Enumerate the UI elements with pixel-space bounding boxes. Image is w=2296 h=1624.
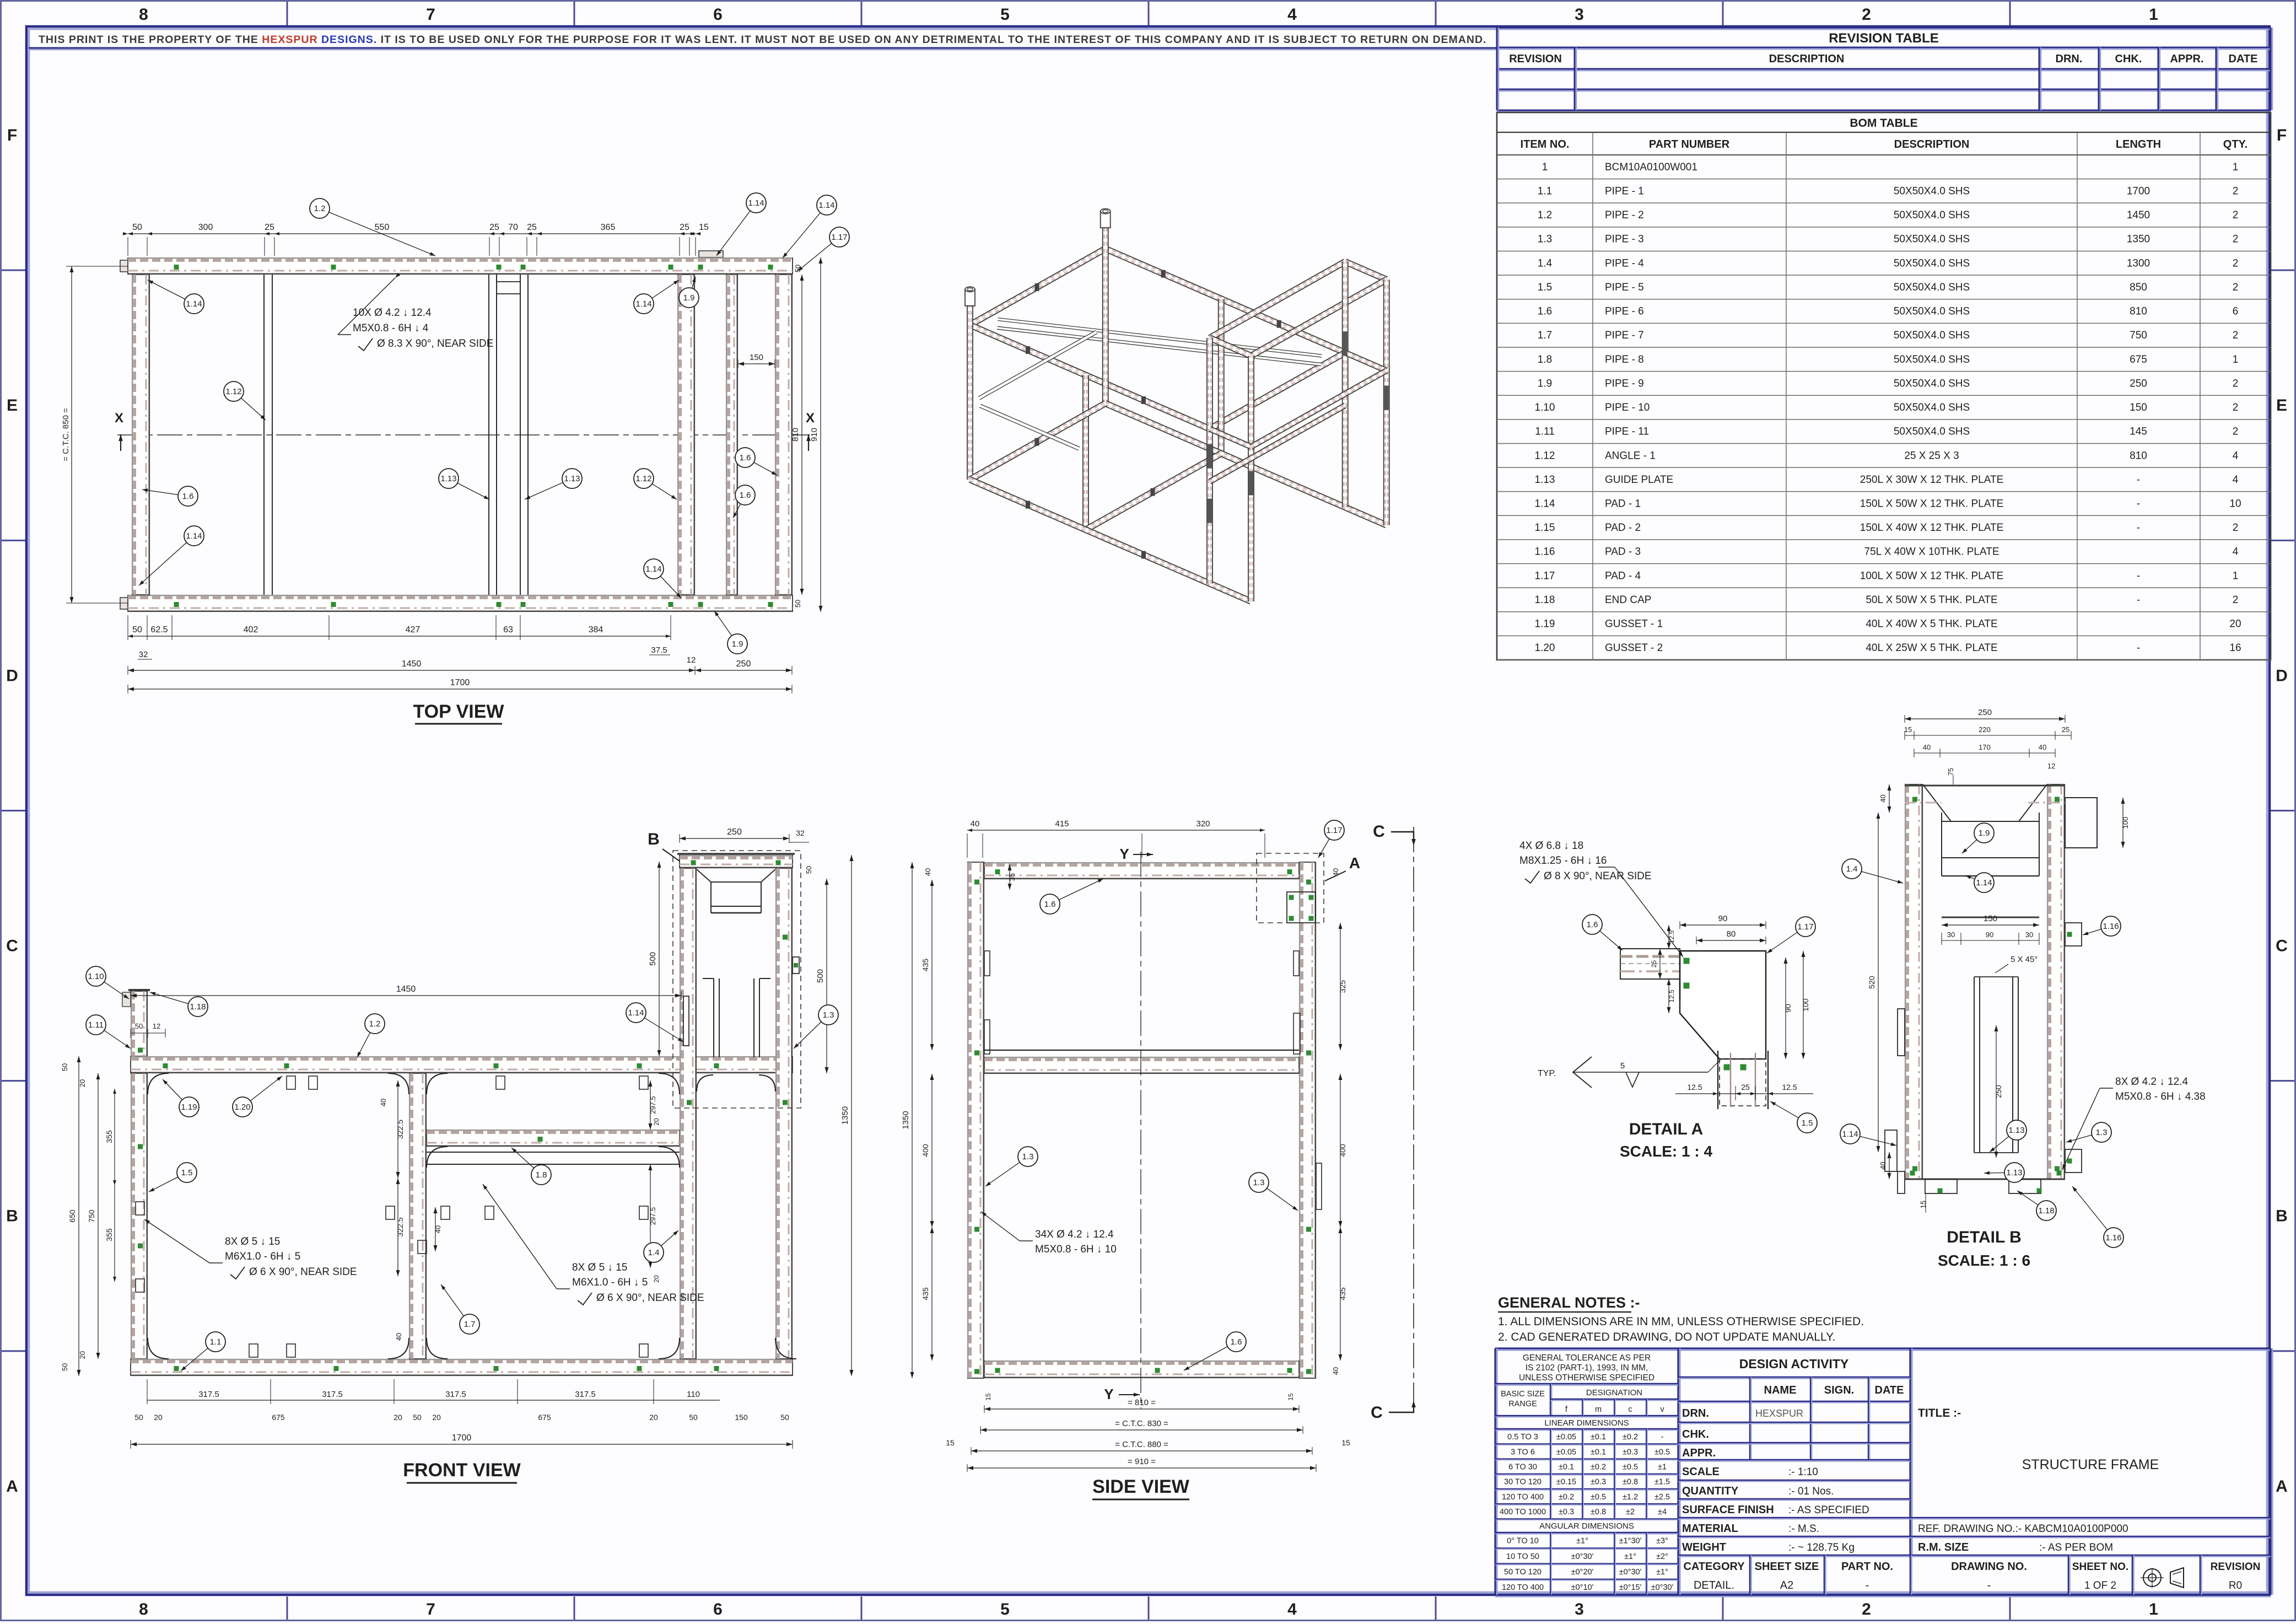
svg-text:PAD - 2: PAD - 2 [1605, 522, 1641, 534]
svg-text:40: 40 [1879, 1161, 1887, 1169]
svg-text:50: 50 [689, 1413, 698, 1422]
svg-text:SCALE: SCALE [1682, 1466, 1720, 1478]
svg-text:1.6: 1.6 [1044, 900, 1056, 909]
svg-text:PIPE - 2: PIPE - 2 [1605, 209, 1644, 221]
svg-text:M5X0.8 - 6H ↓ 4.38: M5X0.8 - 6H ↓ 4.38 [2115, 1091, 2206, 1103]
svg-text:150: 150 [1984, 914, 1997, 923]
svg-text:1.9: 1.9 [732, 639, 743, 649]
svg-text:A2: A2 [1780, 1579, 1793, 1591]
svg-text:3: 3 [1575, 6, 1584, 24]
svg-text:A: A [1349, 854, 1360, 872]
svg-text:25: 25 [489, 223, 499, 232]
svg-text:HEXSPUR: HEXSPUR [1755, 1408, 1803, 1419]
svg-text:= C.T.C. 850 =: = C.T.C. 850 = [61, 408, 71, 461]
svg-text:1.14: 1.14 [635, 299, 651, 309]
svg-text:PIPE - 10: PIPE - 10 [1605, 402, 1650, 413]
svg-text:±0.8: ±0.8 [1591, 1508, 1606, 1517]
svg-text:320: 320 [1196, 819, 1210, 829]
svg-text:50X50X4.0 SHS: 50X50X4.0 SHS [1894, 354, 1970, 365]
svg-text:20: 20 [78, 1351, 87, 1359]
svg-text:40: 40 [1332, 1367, 1340, 1375]
svg-text:-: - [2137, 570, 2140, 582]
svg-text:400: 400 [921, 1144, 930, 1157]
svg-text:1.2: 1.2 [369, 1019, 381, 1029]
svg-text:50: 50 [805, 866, 813, 874]
svg-text:250: 250 [736, 659, 751, 669]
svg-text:= C.T.C. 880 =: = C.T.C. 880 = [1115, 1440, 1168, 1449]
svg-text:20: 20 [432, 1413, 441, 1422]
svg-text:150L X 40W X 12 THK. PLATE: 150L X 40W X 12 THK. PLATE [1860, 522, 2004, 534]
svg-text:50: 50 [135, 1022, 143, 1030]
svg-text:M5X0.8 - 6H ↓ 10: M5X0.8 - 6H ↓ 10 [1035, 1244, 1117, 1255]
svg-text:1.6: 1.6 [1538, 306, 1552, 318]
svg-text:2: 2 [2233, 522, 2239, 534]
svg-text:1. ALL DIMENSIONS ARE IN MM: 1. ALL DIMENSIONS ARE IN MM, UNLESS OTHE… [1498, 1315, 1864, 1328]
svg-text:1.3: 1.3 [1253, 1178, 1265, 1187]
svg-text:25: 25 [527, 223, 537, 232]
svg-text:1.10: 1.10 [88, 972, 104, 981]
svg-text:50: 50 [794, 600, 802, 607]
svg-text:250: 250 [1994, 1085, 2003, 1098]
svg-text:F: F [7, 126, 17, 144]
svg-text:75: 75 [1947, 768, 1955, 776]
svg-text:90: 90 [1783, 1004, 1792, 1013]
svg-text:1.12: 1.12 [635, 474, 651, 483]
svg-text:BASIC SIZE: BASIC SIZE [1501, 1390, 1545, 1399]
svg-text::- 1:10: :- 1:10 [1788, 1466, 1818, 1478]
svg-text:317.5: 317.5 [575, 1390, 596, 1399]
svg-text:1350: 1350 [2127, 234, 2150, 245]
svg-text:D: D [2276, 666, 2288, 685]
svg-text:5: 5 [1620, 1061, 1625, 1071]
svg-text:2: 2 [2233, 257, 2239, 269]
svg-text:50X50X4.0 SHS: 50X50X4.0 SHS [1894, 282, 1970, 293]
svg-text:810: 810 [2130, 450, 2147, 461]
svg-text:QUANTITY: QUANTITY [1682, 1485, 1739, 1497]
svg-text:40: 40 [1332, 868, 1340, 876]
svg-text:322.5: 322.5 [396, 1217, 405, 1236]
svg-text:40: 40 [434, 1225, 442, 1233]
svg-text:675: 675 [272, 1413, 285, 1422]
svg-text:50X50X4.0 SHS: 50X50X4.0 SHS [1894, 426, 1970, 438]
svg-text:10: 10 [2229, 498, 2241, 509]
svg-text:1.18: 1.18 [190, 1002, 206, 1012]
svg-text:-: - [2137, 498, 2140, 509]
svg-text:15: 15 [699, 223, 709, 232]
svg-text:5 X 45°: 5 X 45° [2011, 955, 2038, 964]
svg-text:E: E [2276, 396, 2287, 415]
svg-text:REVISION TABLE: REVISION TABLE [1829, 31, 1939, 46]
svg-text:15: 15 [1287, 1393, 1295, 1401]
svg-text:-: - [2137, 522, 2140, 534]
svg-text:32: 32 [139, 650, 148, 659]
svg-text:0° TO 10: 0° TO 10 [1507, 1537, 1539, 1546]
svg-text:910: 910 [810, 428, 819, 442]
svg-text:SCALE: 1 : 6: SCALE: 1 : 6 [1938, 1252, 2030, 1269]
svg-text:1: 1 [2149, 6, 2158, 24]
svg-text:170: 170 [1979, 743, 1991, 751]
svg-text:A: A [2276, 1477, 2288, 1496]
svg-text:PIPE - 3: PIPE - 3 [1605, 234, 1644, 245]
svg-text:DETAIL B: DETAIL B [1947, 1228, 2022, 1246]
svg-text:D: D [6, 666, 18, 685]
svg-text:8X Ø 5 ↓ 15: 8X Ø 5 ↓ 15 [572, 1262, 627, 1273]
svg-text::- ~ 128.75 Kg: :- ~ 128.75 Kg [1788, 1542, 1855, 1553]
svg-text:1.11: 1.11 [1535, 426, 1555, 438]
svg-text:1450: 1450 [402, 659, 422, 669]
svg-text:400 TO 1000: 400 TO 1000 [1500, 1508, 1546, 1517]
svg-text:520: 520 [1867, 976, 1876, 989]
svg-text:1: 1 [2149, 1600, 2158, 1618]
svg-text:MATERIAL: MATERIAL [1682, 1523, 1738, 1535]
svg-text:DRAWING NO.: DRAWING NO. [1951, 1561, 2027, 1573]
svg-text:10X Ø 4.2 ↓ 12.4: 10X Ø 4.2 ↓ 12.4 [353, 307, 432, 319]
svg-text:40: 40 [379, 1099, 387, 1106]
svg-text:110: 110 [687, 1390, 700, 1399]
svg-text:1.20: 1.20 [1535, 642, 1555, 654]
svg-text:415: 415 [1055, 819, 1069, 829]
svg-text:WEIGHT: WEIGHT [1682, 1541, 1726, 1553]
svg-text:1700: 1700 [452, 1433, 472, 1443]
svg-text:PAD - 4: PAD - 4 [1605, 570, 1641, 582]
svg-text:±0.1: ±0.1 [1559, 1463, 1574, 1472]
svg-text:C: C [1371, 1403, 1383, 1422]
svg-text:7: 7 [426, 6, 435, 24]
svg-text::- 01 Nos.: :- 01 Nos. [1788, 1486, 1834, 1497]
svg-text:50X50X4.0 SHS: 50X50X4.0 SHS [1894, 257, 1970, 269]
svg-text:2. CAD GENERATED DRAWING, D: 2. CAD GENERATED DRAWING, DO NOT UPDATE … [1498, 1331, 1835, 1343]
svg-text:50X50X4.0 SHS: 50X50X4.0 SHS [1894, 330, 1970, 341]
svg-text:TYP.: TYP. [1538, 1069, 1556, 1078]
svg-text:1.14: 1.14 [1842, 1130, 1858, 1139]
svg-text:2: 2 [2233, 209, 2239, 221]
svg-text:±1°: ±1° [1624, 1552, 1636, 1561]
svg-text:20: 20 [653, 1118, 660, 1126]
svg-text:DETAIL.: DETAIL. [1694, 1579, 1734, 1591]
svg-text:±4: ±4 [1658, 1508, 1667, 1517]
svg-text:FRONT VIEW: FRONT VIEW [403, 1460, 521, 1481]
svg-text:12: 12 [153, 1022, 160, 1030]
svg-text:1: 1 [2233, 570, 2239, 582]
svg-text:1.3: 1.3 [823, 1010, 834, 1020]
svg-text:SURFACE FINISH: SURFACE FINISH [1682, 1504, 1774, 1516]
svg-text:5: 5 [1000, 6, 1010, 24]
svg-text:1.13: 1.13 [2008, 1126, 2024, 1135]
svg-text:2: 2 [2233, 402, 2239, 413]
svg-text:32: 32 [796, 829, 805, 837]
svg-text:ANGLE - 1: ANGLE - 1 [1605, 450, 1656, 461]
svg-text:37.5: 37.5 [651, 646, 667, 655]
svg-text:-: - [2137, 642, 2140, 654]
svg-text:0.5 TO 3: 0.5 TO 3 [1507, 1433, 1538, 1442]
svg-text:-: - [1661, 1433, 1664, 1442]
svg-text:12: 12 [2047, 762, 2055, 770]
svg-text:PIPE - 1: PIPE - 1 [1605, 185, 1644, 197]
svg-text:IS 2102 (PART-1), 1993, IN MM,: IS 2102 (PART-1), 1993, IN MM, [1526, 1363, 1648, 1373]
svg-text:15: 15 [1341, 1438, 1350, 1447]
svg-text:2: 2 [2233, 282, 2239, 293]
svg-text:8: 8 [139, 1600, 148, 1618]
svg-text:297.5: 297.5 [649, 1096, 657, 1114]
svg-text:R0: R0 [2229, 1580, 2242, 1591]
svg-text:90: 90 [1718, 914, 1728, 923]
svg-text:±0.8: ±0.8 [1623, 1478, 1638, 1487]
svg-text:1 OF 2: 1 OF 2 [2084, 1580, 2116, 1591]
svg-text:±1°: ±1° [1656, 1568, 1668, 1577]
svg-text:PIPE - 6: PIPE - 6 [1605, 306, 1644, 318]
svg-text:1450: 1450 [2127, 209, 2150, 221]
svg-text:±0.3: ±0.3 [1591, 1478, 1606, 1487]
svg-text:±0.05: ±0.05 [1556, 1448, 1576, 1456]
svg-text:C: C [6, 937, 18, 955]
svg-text:427: 427 [406, 625, 421, 634]
svg-text:15: 15 [984, 1393, 992, 1401]
svg-text:±0.5: ±0.5 [1623, 1463, 1638, 1472]
svg-text:6: 6 [713, 6, 723, 24]
svg-text:±1.2: ±1.2 [1623, 1493, 1638, 1502]
svg-text:25: 25 [265, 223, 274, 232]
svg-text:80: 80 [1727, 929, 1736, 939]
svg-text:GENERAL NOTES :-: GENERAL NOTES :- [1498, 1294, 1640, 1311]
svg-text:C: C [2276, 937, 2288, 955]
svg-text:6: 6 [713, 1600, 723, 1618]
svg-text:4: 4 [1287, 6, 1297, 24]
svg-text:500: 500 [816, 969, 825, 983]
svg-text:±0.3: ±0.3 [1623, 1448, 1638, 1456]
svg-text:BCM10A0100W001: BCM10A0100W001 [1605, 162, 1697, 173]
svg-text:1.14: 1.14 [1976, 878, 1992, 888]
svg-text:220: 220 [1979, 725, 1991, 734]
svg-text:PIPE - 4: PIPE - 4 [1605, 257, 1644, 269]
svg-text:145: 145 [2130, 426, 2147, 438]
svg-text:1350: 1350 [840, 1106, 850, 1125]
svg-text:8X Ø 4.2 ↓ 12.4: 8X Ø 4.2 ↓ 12.4 [2115, 1076, 2188, 1088]
svg-text:UNLESS OTHERWISE SPECIFIED: UNLESS OTHERWISE SPECIFIED [1519, 1373, 1654, 1383]
svg-text:40: 40 [924, 868, 932, 876]
svg-text:1.6: 1.6 [182, 492, 194, 501]
svg-text:1.19: 1.19 [1535, 619, 1555, 630]
svg-text:355: 355 [105, 1130, 114, 1143]
svg-text:1.2: 1.2 [1538, 209, 1552, 221]
svg-text:SHEET NO.: SHEET NO. [2072, 1561, 2128, 1573]
svg-text:4: 4 [2233, 546, 2239, 558]
svg-text:DESIGN ACTIVITY: DESIGN ACTIVITY [1739, 1357, 1849, 1371]
svg-text:DATE: DATE [1875, 1384, 1904, 1396]
svg-text:30 TO 120: 30 TO 120 [1504, 1478, 1542, 1487]
svg-text:1.13: 1.13 [2006, 1168, 2022, 1177]
svg-text:1.14: 1.14 [186, 299, 202, 309]
svg-text:Ø 8.3 X 90°, NEAR SIDE: Ø 8.3 X 90°, NEAR SIDE [377, 338, 493, 349]
svg-text:25: 25 [1650, 960, 1658, 968]
svg-text:±0.2: ±0.2 [1591, 1463, 1606, 1472]
svg-text:384: 384 [589, 625, 603, 634]
svg-text:±1.5: ±1.5 [1654, 1478, 1670, 1487]
svg-text:150: 150 [750, 353, 763, 362]
svg-text:40L X 40W X 5 THK. PLATE: 40L X 40W X 5 THK. PLATE [1866, 619, 1997, 630]
svg-text:THIS PRINT IS THE PROPERTY OF: THIS PRINT IS THE PROPERTY OF THE HEXSPU… [39, 34, 1486, 46]
svg-text:365: 365 [601, 223, 616, 232]
svg-text:1.7: 1.7 [1538, 330, 1552, 341]
svg-text:1.18: 1.18 [2038, 1206, 2054, 1216]
svg-text:X: X [806, 411, 815, 426]
svg-text:1.2: 1.2 [314, 204, 326, 213]
svg-text:25 X 25 X 3: 25 X 25 X 3 [1904, 450, 1959, 461]
svg-text:30: 30 [1947, 931, 1955, 939]
svg-text:R.M. SIZE: R.M. SIZE [1918, 1541, 1969, 1553]
svg-text:A: A [6, 1477, 18, 1496]
svg-text:±0.5: ±0.5 [1591, 1493, 1606, 1502]
svg-text:317.5: 317.5 [198, 1390, 219, 1399]
svg-text:1.16: 1.16 [2105, 1233, 2121, 1243]
svg-text:250: 250 [2130, 378, 2147, 389]
svg-text:PART NUMBER: PART NUMBER [1649, 138, 1730, 150]
svg-text:DATE: DATE [2229, 53, 2258, 65]
svg-text:±1°: ±1° [1576, 1537, 1588, 1546]
svg-text:40: 40 [1879, 794, 1887, 802]
svg-text:100: 100 [2121, 817, 2130, 829]
svg-text:M6X1.0 - 6H ↓ 5: M6X1.0 - 6H ↓ 5 [225, 1251, 300, 1262]
svg-text:6: 6 [2233, 306, 2239, 318]
svg-text:±1°30': ±1°30' [1619, 1537, 1642, 1546]
svg-text:1.7: 1.7 [464, 1320, 476, 1329]
svg-text:40: 40 [395, 1333, 403, 1341]
svg-text:1.4: 1.4 [1538, 257, 1553, 269]
svg-text:SHEET SIZE: SHEET SIZE [1755, 1561, 1819, 1573]
svg-text:±0°30': ±0°30' [1619, 1568, 1642, 1577]
svg-text:DRN.: DRN. [2056, 53, 2083, 65]
svg-text:B: B [6, 1207, 18, 1225]
svg-text:150L X 50W X 12 THK. PLATE: 150L X 50W X 12 THK. PLATE [1860, 498, 2004, 509]
svg-text:1.4: 1.4 [648, 1248, 660, 1257]
svg-text:30: 30 [2025, 931, 2033, 939]
svg-text:7: 7 [426, 1600, 435, 1618]
svg-text:±0°30': ±0°30' [1651, 1583, 1674, 1592]
svg-text:= 810 =: = 810 = [1128, 1398, 1156, 1407]
svg-text:TITLE :-: TITLE :- [1918, 1407, 1961, 1419]
svg-text:X: X [115, 411, 123, 426]
svg-text:GUSSET - 1: GUSSET - 1 [1605, 619, 1663, 630]
svg-text:25: 25 [680, 223, 689, 232]
svg-text::- M.S.: :- M.S. [1788, 1523, 1819, 1535]
svg-text:DESCRIPTION: DESCRIPTION [1894, 138, 1970, 150]
svg-text:SIGN.: SIGN. [1824, 1384, 1854, 1396]
svg-text:20: 20 [154, 1413, 163, 1422]
svg-text:1700: 1700 [2127, 185, 2150, 197]
svg-text:50: 50 [61, 1063, 69, 1071]
svg-text:-: - [1866, 1579, 1869, 1591]
svg-text:435: 435 [921, 959, 930, 972]
svg-text:F: F [2277, 126, 2287, 144]
svg-text:300: 300 [198, 223, 213, 232]
svg-text:4: 4 [1287, 1600, 1297, 1618]
svg-text:2: 2 [2233, 426, 2239, 438]
svg-text:1700: 1700 [450, 678, 470, 687]
svg-text:810: 810 [791, 428, 800, 442]
svg-text:REF. DRAWING NO.:- KABCM10A010: REF. DRAWING NO.:- KABCM10A0100P000 [1918, 1523, 2128, 1535]
svg-text:1.5: 1.5 [1538, 282, 1552, 293]
svg-text:1.8: 1.8 [1538, 354, 1552, 365]
svg-text:2: 2 [2233, 185, 2239, 197]
svg-text:250: 250 [727, 827, 742, 837]
svg-text:±0.05: ±0.05 [1556, 1433, 1576, 1442]
svg-text:M6X1.0 - 6H ↓ 5: M6X1.0 - 6H ↓ 5 [572, 1277, 648, 1288]
svg-text:4X Ø 6.8 ↓ 18: 4X Ø 6.8 ↓ 18 [1519, 840, 1583, 852]
svg-text:Ø 8 X 90°, NEAR SIDE: Ø 8 X 90°, NEAR SIDE [1544, 870, 1652, 882]
svg-text:150: 150 [2130, 402, 2147, 413]
svg-text:550: 550 [375, 223, 390, 232]
svg-text:3 TO 6: 3 TO 6 [1511, 1448, 1535, 1456]
svg-text:1300: 1300 [2127, 257, 2150, 269]
svg-text:1.11: 1.11 [88, 1020, 104, 1030]
svg-text:1.14: 1.14 [1535, 498, 1555, 509]
svg-text:DRN.: DRN. [1682, 1407, 1709, 1419]
svg-text:1450: 1450 [396, 985, 416, 994]
svg-text:8: 8 [139, 6, 148, 24]
svg-text:20: 20 [394, 1413, 402, 1422]
svg-text:12.5: 12.5 [1782, 1083, 1797, 1091]
svg-text:ANGULAR DIMENSIONS: ANGULAR DIMENSIONS [1539, 1521, 1634, 1531]
svg-text:REVISION: REVISION [1509, 53, 1562, 65]
svg-text:±0.1: ±0.1 [1591, 1448, 1606, 1456]
svg-text:1.12: 1.12 [1535, 450, 1555, 461]
svg-text:1.3: 1.3 [1538, 234, 1552, 245]
svg-text:8X Ø 5 ↓ 15: 8X Ø 5 ↓ 15 [225, 1236, 280, 1247]
svg-text:LENGTH: LENGTH [2116, 138, 2161, 150]
svg-text:5: 5 [1000, 1600, 1010, 1618]
svg-text:50: 50 [132, 223, 142, 232]
svg-text:= 910 =: = 910 = [1128, 1457, 1156, 1466]
svg-text:1.9: 1.9 [1979, 829, 1990, 838]
svg-text:C: C [1373, 822, 1385, 841]
svg-text:50X50X4.0 SHS: 50X50X4.0 SHS [1894, 209, 1970, 221]
svg-text:850: 850 [2130, 282, 2147, 293]
svg-text:LINEAR DIMENSIONS: LINEAR DIMENSIONS [1544, 1418, 1629, 1428]
svg-text:±1: ±1 [1658, 1463, 1667, 1472]
svg-text:435: 435 [1338, 1287, 1347, 1300]
svg-text:2: 2 [2233, 594, 2239, 606]
svg-text:1.18: 1.18 [1535, 594, 1555, 606]
svg-text:PIPE - 5: PIPE - 5 [1605, 282, 1644, 293]
svg-text:4: 4 [2233, 474, 2239, 486]
svg-text:B: B [2276, 1207, 2288, 1225]
svg-text:400: 400 [1338, 1144, 1347, 1157]
svg-text:2: 2 [1862, 1600, 1871, 1618]
svg-text:SCALE: 1 : 4: SCALE: 1 : 4 [1620, 1143, 1712, 1160]
svg-text:STRUCTURE FRAME: STRUCTURE FRAME [2022, 1457, 2159, 1472]
svg-text:325: 325 [1338, 980, 1347, 993]
svg-text:402: 402 [244, 625, 258, 634]
svg-text:70: 70 [508, 223, 518, 232]
svg-text:APPR.: APPR. [2170, 53, 2203, 65]
svg-text:Ø 6 X 90°, NEAR SIDE: Ø 6 X 90°, NEAR SIDE [249, 1266, 357, 1278]
svg-text:QTY.: QTY. [2223, 138, 2248, 150]
svg-text:4: 4 [2233, 450, 2239, 461]
svg-text:DESIGNATION: DESIGNATION [1586, 1388, 1642, 1397]
svg-text:±2°: ±2° [1656, 1552, 1668, 1561]
svg-text:1.14: 1.14 [818, 201, 834, 210]
svg-text:CHK.: CHK. [1682, 1428, 1709, 1440]
svg-text:100L X 50W X 12 THK. PLATE: 100L X 50W X 12 THK. PLATE [1860, 570, 2004, 582]
svg-text:2: 2 [2233, 234, 2239, 245]
svg-text:250: 250 [1978, 708, 1992, 717]
svg-text:1: 1 [2233, 162, 2239, 173]
svg-text:PIPE - 7: PIPE - 7 [1605, 330, 1644, 341]
svg-text:v: v [1660, 1405, 1664, 1414]
svg-text:1.16: 1.16 [1535, 546, 1555, 558]
svg-text:1.14: 1.14 [628, 1008, 644, 1018]
svg-text:50L X 50W X 5 THK. PLATE: 50L X 50W X 5 THK. PLATE [1866, 594, 1997, 606]
svg-text:APPR.: APPR. [1682, 1447, 1716, 1459]
